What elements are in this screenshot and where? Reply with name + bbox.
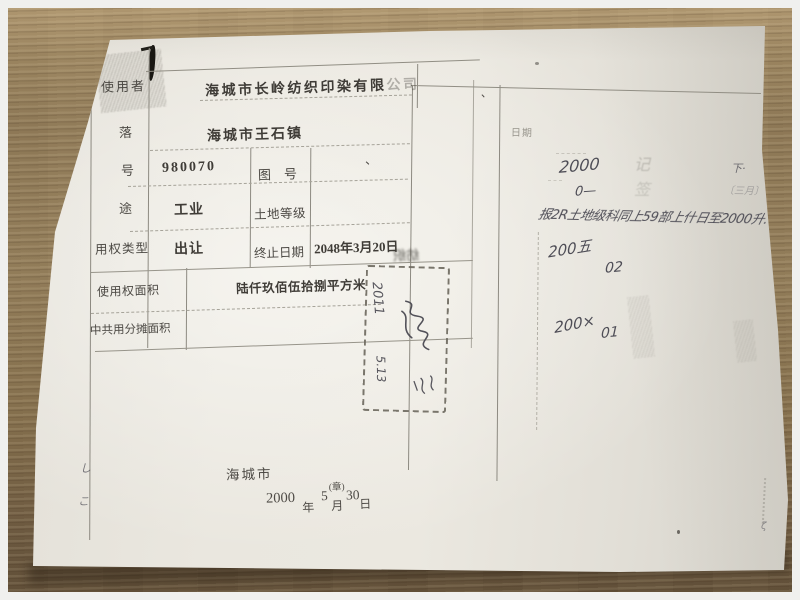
table-line-extension [471,80,474,348]
screenshot-root: { "doc": { "table": { "rows": [ {"label"… [0,0,800,600]
pen-mark-2: こ [78,493,89,509]
issue-year-unit: 年 [302,498,314,515]
hw-down-mark: 下· [731,160,746,176]
paper-speck-1 [677,530,680,534]
row3-label: 号 [121,160,135,179]
hw-01: 01 [601,324,619,342]
issue-date: 2000 年 5 (章) 月 30 日 [264,476,395,515]
tick-mark-2: 、 [481,85,492,101]
row-divider-2 [150,143,410,151]
frame-bottom [0,592,800,600]
row4-label: 途 [119,198,133,217]
faint-month-mark: 〔三月〕 [724,182,764,198]
table-line-fig-col [310,148,312,268]
table-line-label-col [147,48,150,348]
frame-top [0,0,800,8]
row1-value-faded: 公司 [386,78,419,94]
row3-value: 980070 [162,159,216,177]
frame-left [0,0,8,600]
frame-right [792,0,800,600]
stamp-year: 2011 [369,281,386,315]
faint-stamp-smudge-2 [733,319,757,363]
row-divider-4 [130,222,410,232]
issue-month: 5 [321,488,328,504]
faint-dash-a [556,153,586,154]
right-column-header: 日期 [511,124,533,139]
edge-mark: ζ [761,521,766,532]
right-section-divider [496,85,500,481]
hw-year-2000: 2000 [558,154,600,177]
hw-zero-dash: 0— [574,183,596,200]
issue-year: 2000 [266,490,295,508]
edge-dotted-line [762,478,766,524]
issue-day: 30 [346,487,360,503]
row3-tick-mark: 、 [365,151,378,168]
issue-seal-note: (章) [329,479,345,493]
row7-label: 中共用分摊面积 [90,320,171,339]
row4-value: 工业 [174,199,205,220]
row5-value: 出让 [174,238,205,259]
table-top-border [146,59,480,72]
document-paper: 使用者 海城市长岭纺织印染有限公司 落 海城市王石镇 号 980070 图 号 … [8,8,792,592]
row5-label: 用权类型 [95,237,150,258]
row3-label2: 图 号 [258,163,298,183]
row1-label: 使用者 [101,75,147,95]
row-divider-6 [91,304,381,314]
stamp-date: 5.13 [374,355,389,382]
row5-value2: 2048年3月20日 [314,236,399,258]
row6-value: 陆仟玖佰伍拾捌平方米 [236,274,367,297]
verification-stamp: 2011 5.13 [362,265,450,413]
desk-photo: 使用者 海城市长岭纺织印染有限公司 落 海城市王石镇 号 980070 图 号 … [8,8,792,592]
hw-02: 02 [605,259,624,277]
right-section-faint-line [536,232,539,430]
issue-day-unit: 日 [359,495,371,512]
issue-month-unit: 月 [331,497,343,514]
row4-label2: 土地等级 [254,202,307,223]
row5-label2: 终止日期 [254,241,305,262]
hw-year-2005: 200五 [548,234,591,262]
row2-label: 落 [119,122,133,141]
pen-mark-1: し [80,460,91,476]
stamp-small-scrawl [410,372,439,400]
row2-value: 海城市王石镇 [207,122,304,145]
stamp-signature-scrawl [388,294,440,359]
faint-stamp-text-a: 记 [634,151,650,175]
row1-value: 海城市长岭纺织印染有限公司 [205,74,420,101]
faint-stamp-smudge-1 [627,295,655,359]
hw-200x: 200× [554,311,595,337]
paper-speck-2 [535,62,539,65]
faint-dash-b [548,180,562,181]
hw-note-line: 报2R土地级科同上59部上什日至2000升. [537,203,770,227]
table-line-mid-col [250,148,252,268]
row6-label: 使用权面积 [97,281,160,300]
faint-stamp-text-b: 签 [634,176,650,200]
right-section-top-border [411,85,761,94]
ink-bleed-mirror-text: 纺织 [393,245,420,265]
